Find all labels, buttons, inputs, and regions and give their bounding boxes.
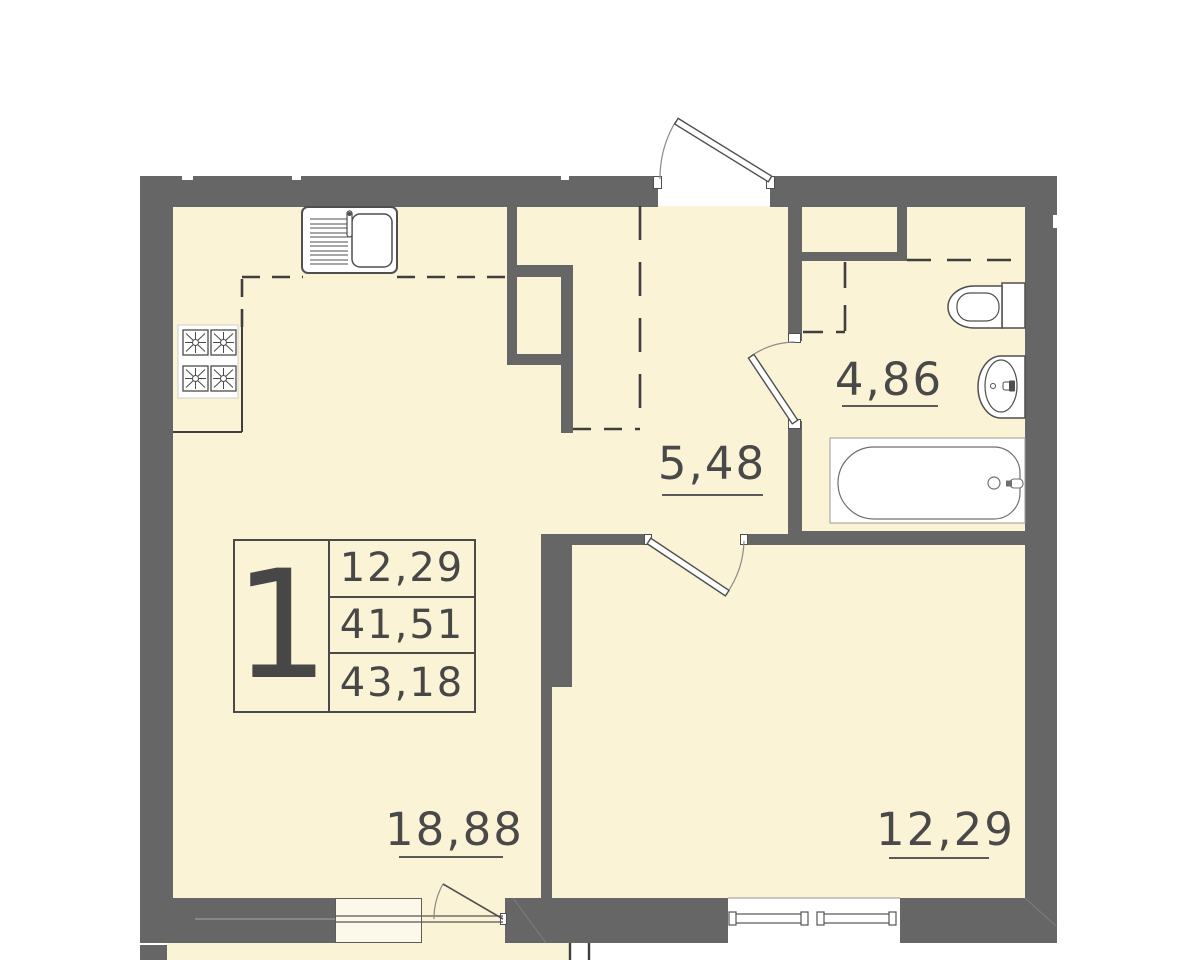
info-row-area: 41,51 (330, 598, 474, 655)
living-room-area-label: 18,88 (385, 807, 515, 852)
apartment-info-table: 1 12,29 41,51 43,18 (233, 539, 476, 713)
info-row-living-area: 12,29 (330, 541, 474, 598)
floor-plan: 4,86 5,48 18,88 12,29 1 12,29 41,51 43,1… (0, 0, 1200, 960)
living-room-area-underline (399, 856, 503, 858)
bedroom-area-label: 12,29 (876, 807, 1000, 852)
hallway-area-label: 5,48 (652, 441, 772, 486)
bathroom-area-label: 4,86 (829, 357, 949, 402)
bathroom-area-underline (842, 405, 938, 407)
room-count-cell: 1 (235, 541, 330, 711)
hallway-area-underline (662, 494, 763, 496)
labels-layer: 4,86 5,48 18,88 12,29 (0, 0, 1200, 960)
info-row-total-area: 43,18 (330, 654, 474, 711)
bedroom-area-underline (889, 857, 989, 859)
